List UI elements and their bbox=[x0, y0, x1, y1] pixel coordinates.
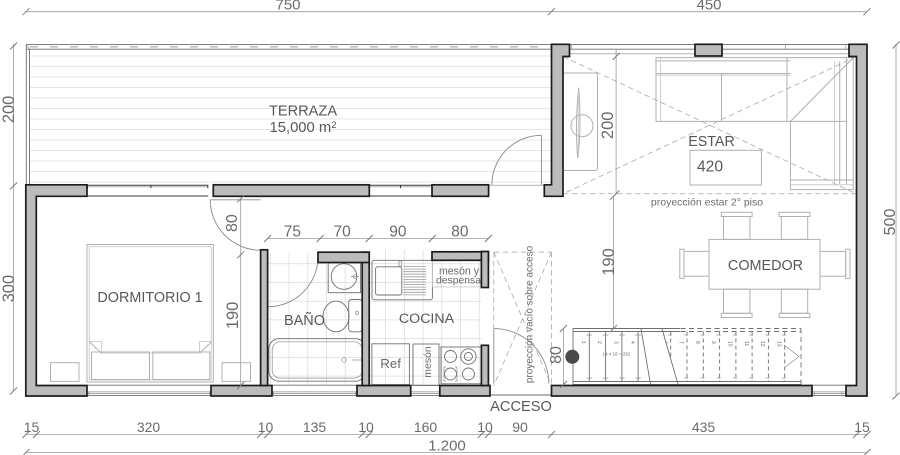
svg-text:320: 320 bbox=[137, 419, 161, 435]
svg-text:3: 3 bbox=[613, 341, 619, 344]
svg-text:500: 500 bbox=[882, 209, 899, 236]
svg-text:14 x 18 = 252: 14 x 18 = 252 bbox=[603, 352, 631, 357]
svg-text:300: 300 bbox=[0, 275, 18, 303]
svg-text:BAÑO: BAÑO bbox=[284, 312, 325, 329]
svg-text:13: 13 bbox=[775, 341, 781, 347]
svg-text:80: 80 bbox=[224, 214, 241, 232]
svg-text:80: 80 bbox=[548, 346, 565, 364]
svg-text:15: 15 bbox=[24, 419, 40, 435]
svg-text:160: 160 bbox=[414, 419, 438, 435]
svg-text:mesón: mesón bbox=[422, 346, 434, 378]
svg-text:200: 200 bbox=[0, 96, 18, 124]
svg-text:proyección vacío sobre acceso: proyección vacío sobre acceso bbox=[525, 245, 536, 383]
svg-text:450: 450 bbox=[696, 0, 721, 14]
svg-text:7: 7 bbox=[678, 341, 684, 344]
svg-text:10: 10 bbox=[477, 419, 493, 435]
svg-text:190: 190 bbox=[224, 302, 242, 330]
svg-text:ESTAR: ESTAR bbox=[688, 134, 735, 150]
svg-text:190: 190 bbox=[600, 248, 618, 276]
svg-text:COMEDOR: COMEDOR bbox=[728, 258, 803, 274]
svg-text:TERRAZA: TERRAZA bbox=[269, 104, 337, 120]
svg-text:2: 2 bbox=[596, 341, 602, 344]
svg-text:10: 10 bbox=[358, 419, 374, 435]
svg-text:80: 80 bbox=[451, 224, 469, 241]
svg-text:12: 12 bbox=[759, 341, 765, 347]
svg-text:90: 90 bbox=[512, 419, 528, 435]
svg-text:15,000 m2: 15,000 m2 bbox=[270, 120, 337, 136]
svg-text:4: 4 bbox=[629, 341, 635, 344]
svg-text:75: 75 bbox=[284, 224, 301, 241]
svg-text:1: 1 bbox=[580, 341, 586, 344]
svg-text:8: 8 bbox=[694, 341, 700, 344]
svg-text:135: 135 bbox=[303, 419, 327, 435]
svg-text:COCINA: COCINA bbox=[399, 311, 455, 327]
svg-text:11: 11 bbox=[743, 341, 749, 346]
svg-text:Ref: Ref bbox=[380, 356, 401, 371]
svg-text:90: 90 bbox=[389, 224, 407, 241]
svg-text:420: 420 bbox=[697, 159, 723, 176]
svg-text:15: 15 bbox=[854, 419, 870, 435]
svg-text:despensa: despensa bbox=[436, 275, 481, 286]
svg-text:ACCESO: ACCESO bbox=[490, 399, 552, 415]
svg-text:1.200: 1.200 bbox=[428, 438, 466, 455]
svg-text:70: 70 bbox=[333, 224, 351, 241]
svg-text:200: 200 bbox=[599, 112, 617, 140]
svg-text:10: 10 bbox=[727, 341, 733, 347]
svg-text:9: 9 bbox=[710, 341, 716, 344]
svg-text:proyección estar 2° piso: proyección estar 2° piso bbox=[651, 197, 763, 209]
svg-text:DORMITORIO 1: DORMITORIO 1 bbox=[97, 290, 202, 306]
svg-text:435: 435 bbox=[692, 419, 716, 435]
svg-text:10: 10 bbox=[258, 419, 274, 435]
svg-text:750: 750 bbox=[275, 0, 300, 14]
